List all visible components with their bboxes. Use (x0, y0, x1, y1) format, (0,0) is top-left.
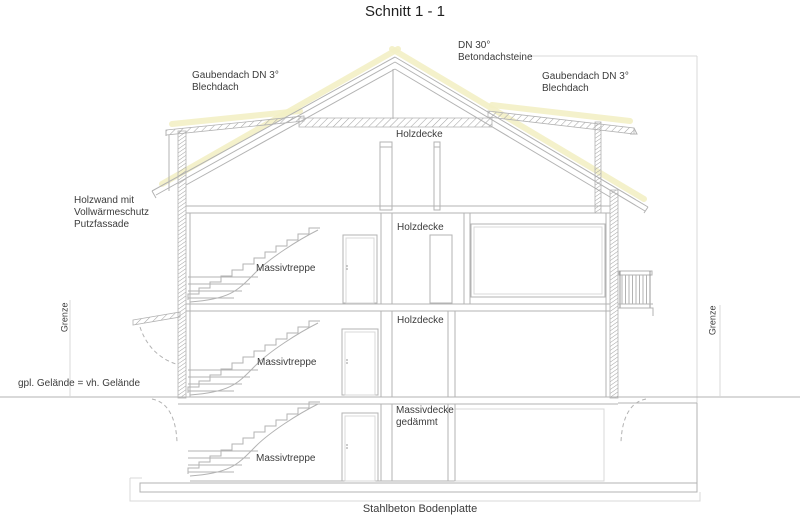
doors (342, 235, 452, 481)
staircase-basement (188, 402, 320, 476)
label-dormer-left: Gaubendach DN 3° Blechdach (192, 70, 279, 94)
label-ceiling-upper: Holzdecke (397, 222, 444, 234)
label-foundation: Stahlbeton Bodenplatte (330, 503, 510, 516)
label-boundary-left: Grenze (60, 290, 71, 344)
label-boundary-right: Grenze (708, 293, 719, 347)
label-dormer-right: Gaubendach DN 3° Blechdach (542, 71, 629, 95)
label-exterior-wall: Holzwand mit Vollwärmeschutz Putzfassade (74, 195, 149, 230)
attic-ceiling (299, 118, 492, 127)
section-drawing (0, 0, 800, 530)
attic-door-frames (380, 142, 440, 210)
label-ground-level: gpl. Gelände = vh. Gelände (18, 378, 140, 390)
label-stairs-basement: Massivtreppe (256, 453, 315, 465)
drawing-title: Schnitt 1 - 1 (300, 3, 510, 20)
label-ceiling-basement: Massivdecke gedämmt (396, 405, 454, 429)
balcony-window (471, 224, 605, 297)
label-main-roof: DN 30° Betondachsteine (458, 40, 533, 64)
label-stairs-ground: Massivtreppe (257, 357, 316, 369)
section-drawing-sheet: Schnitt 1 - 1 DN 30° Betondachsteine Gau… (0, 0, 800, 530)
entrance-canopy (133, 312, 180, 364)
balcony (618, 271, 653, 316)
dormer-left (166, 116, 304, 191)
label-ceiling-ground: Holzdecke (397, 315, 444, 327)
label-stairs-upper: Massivtreppe (256, 263, 315, 275)
floor-slabs (178, 206, 618, 404)
interior-walls (381, 213, 470, 481)
label-ceiling-attic: Holzdecke (396, 129, 443, 141)
